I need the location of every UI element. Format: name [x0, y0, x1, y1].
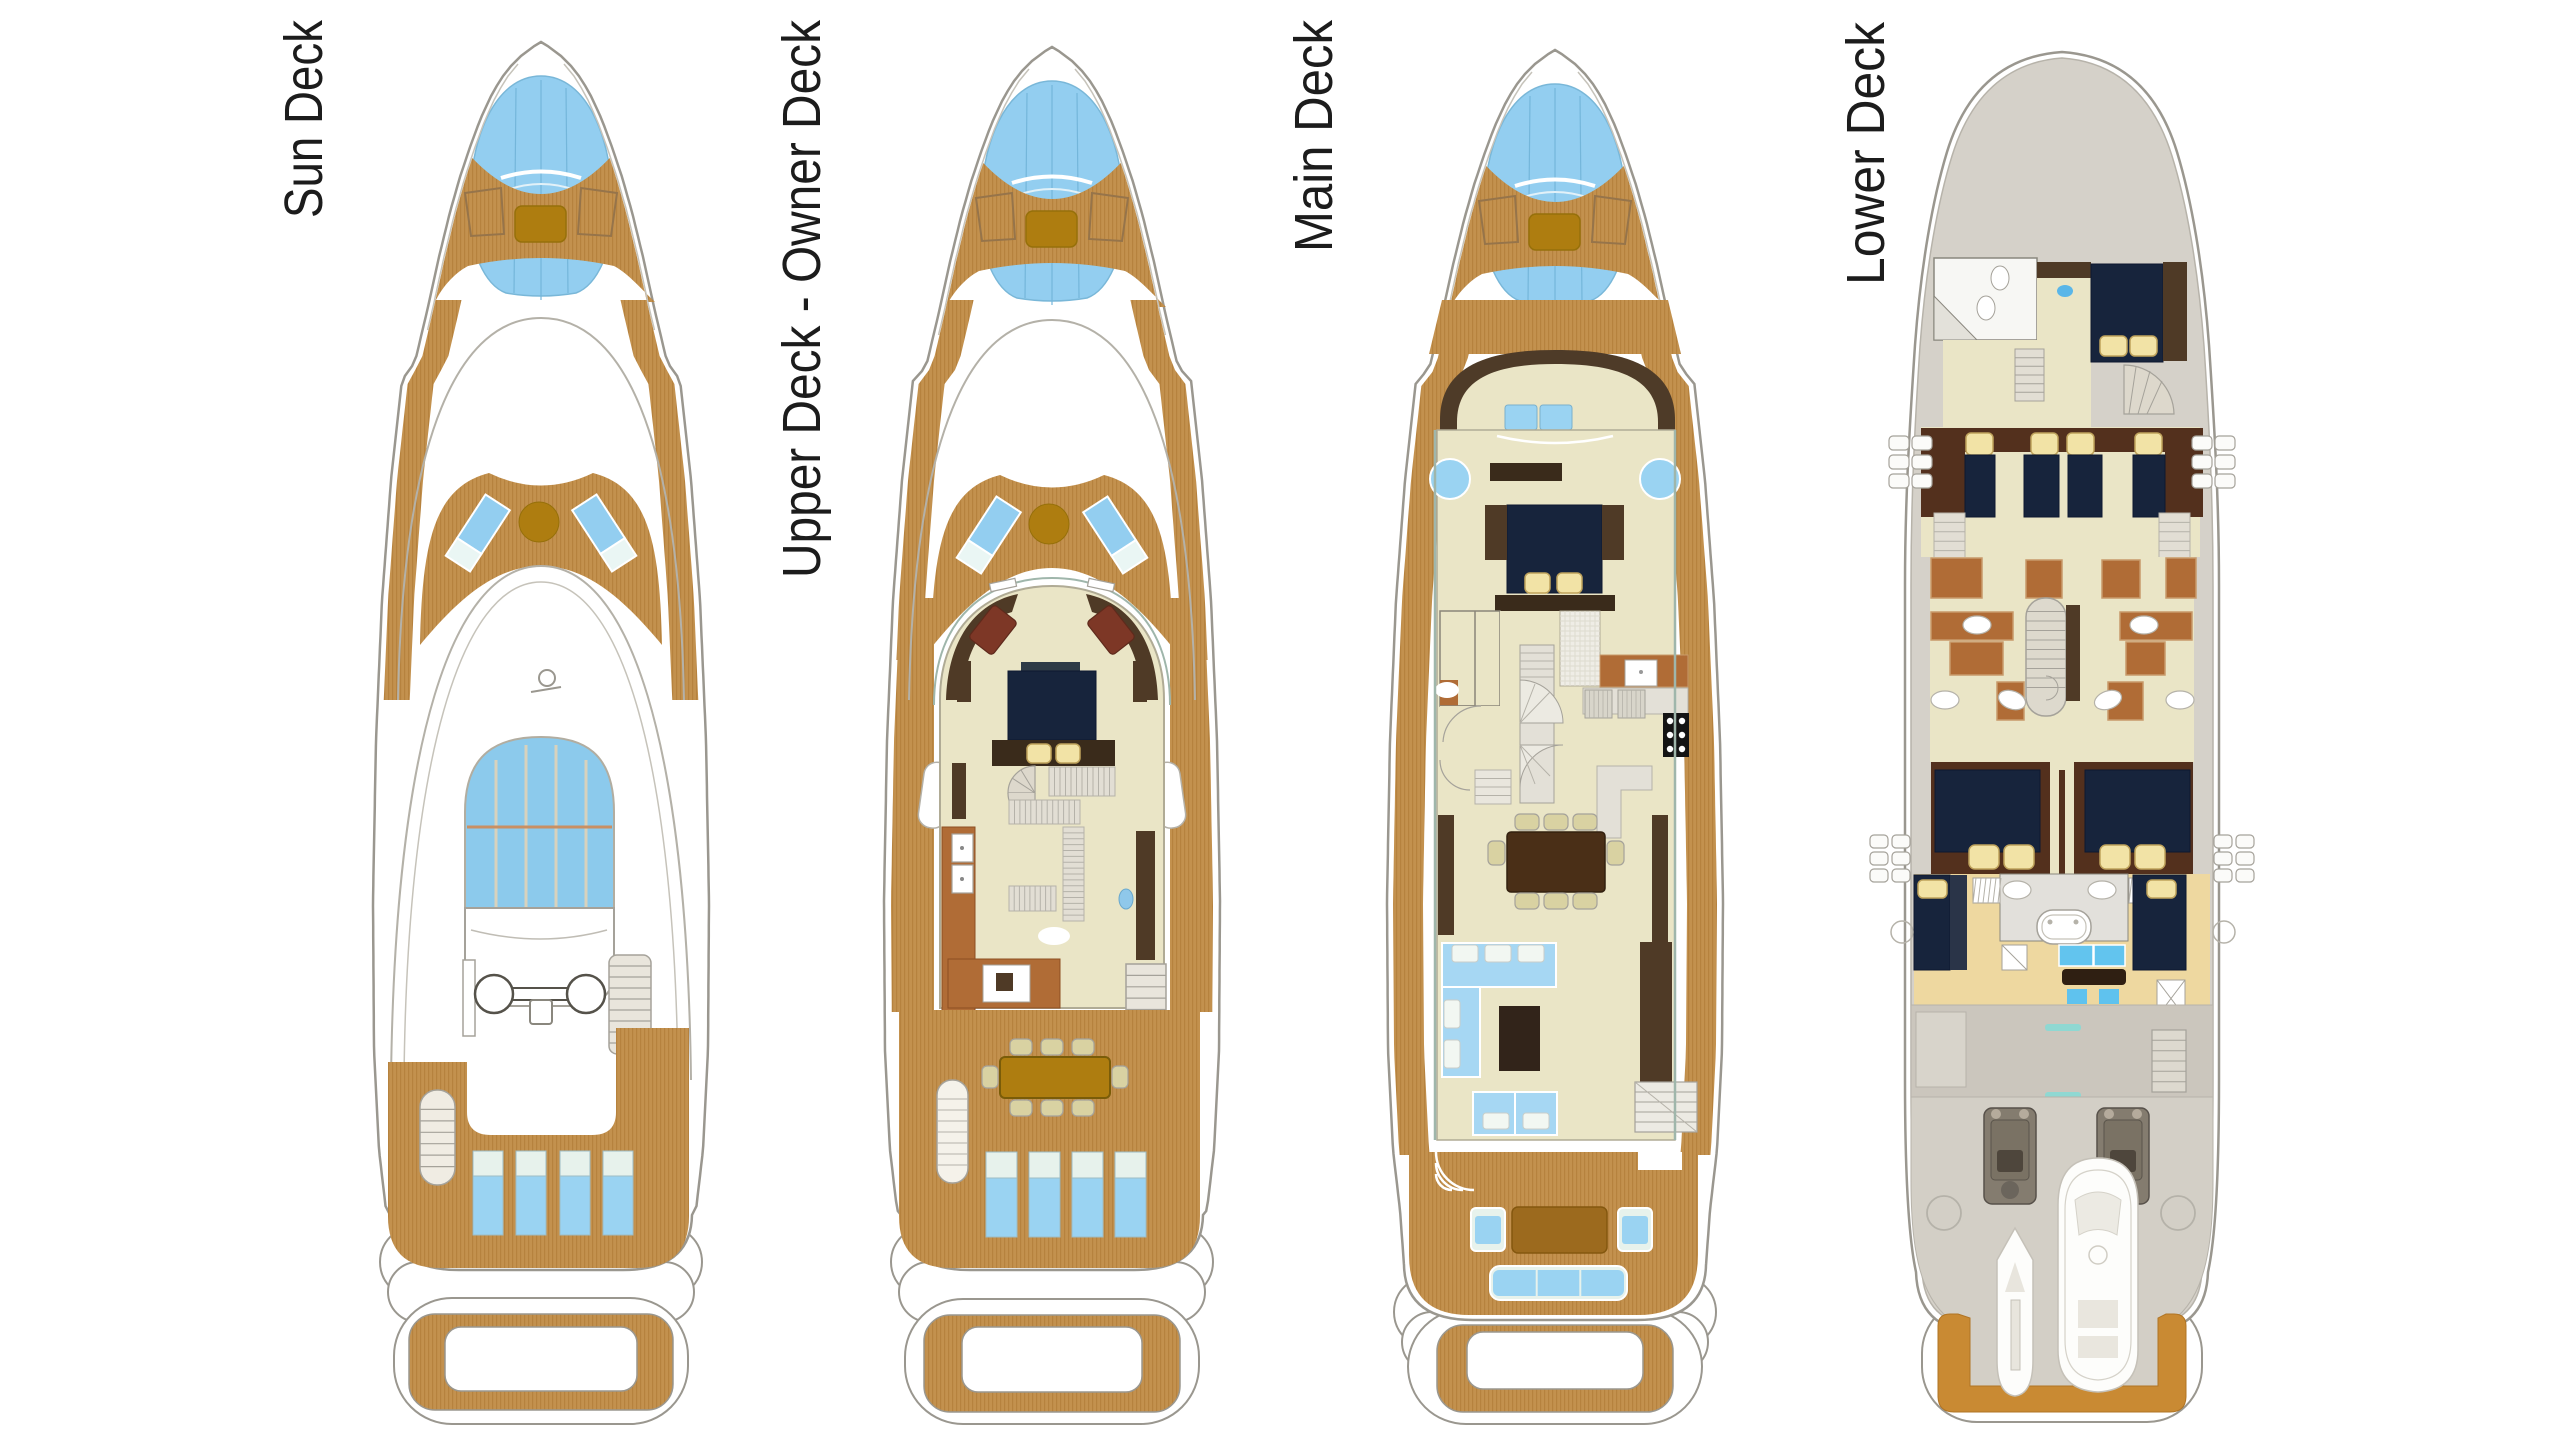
svg-text:Sun Deck: Sun Deck — [274, 19, 334, 218]
svg-text:Main Deck: Main Deck — [1284, 19, 1344, 252]
svg-text:Upper Deck - Owner Deck: Upper Deck - Owner Deck — [772, 19, 832, 578]
svg-text:Lower Deck: Lower Deck — [1836, 21, 1896, 285]
